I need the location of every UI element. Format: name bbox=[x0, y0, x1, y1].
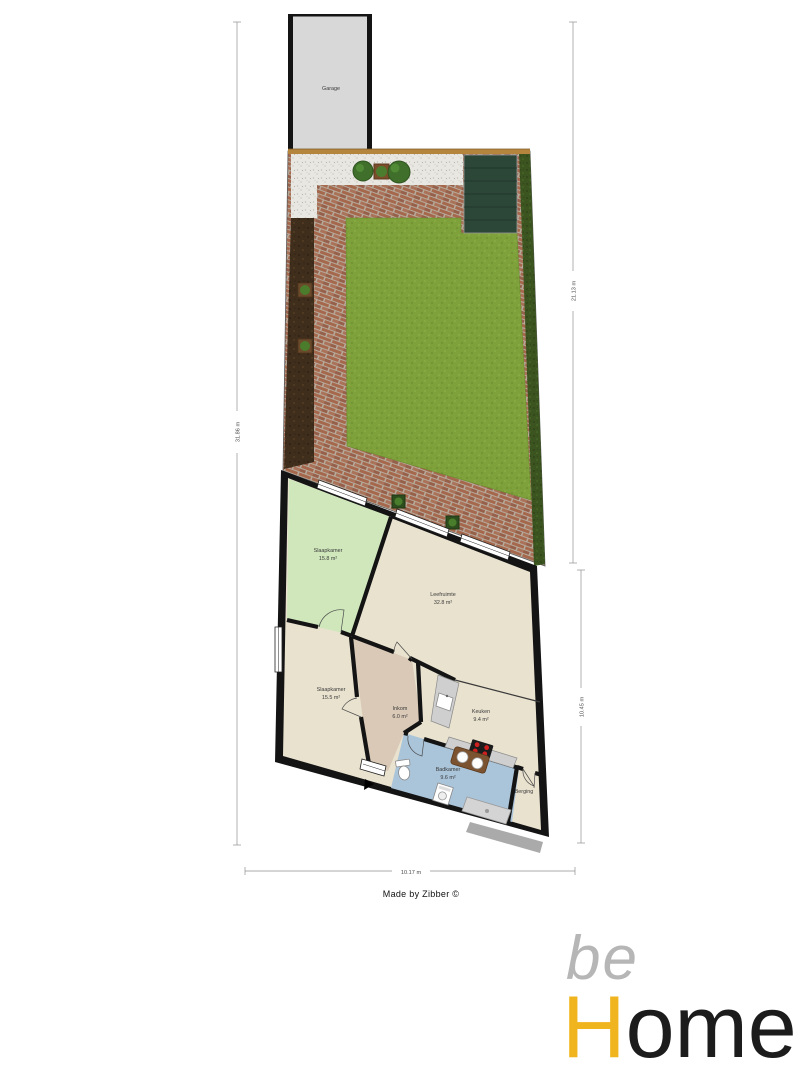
label-slaapkamer2-area: 15.5 m² bbox=[322, 695, 340, 701]
dim-right-upper: 21.13 m bbox=[572, 281, 578, 302]
label-leefruimte-area: 32.8 m² bbox=[434, 600, 452, 606]
garage-wall-right bbox=[367, 14, 372, 151]
credit-text: Made by Zibber © bbox=[383, 889, 460, 899]
shower-drain bbox=[485, 809, 489, 813]
label-inkom-area: 6.0 m² bbox=[392, 714, 407, 720]
label-berging-name: Berging bbox=[515, 789, 534, 795]
gravel-strip-left bbox=[291, 154, 317, 218]
garage: Garage bbox=[288, 14, 372, 151]
label-leefruimte-name: Leefruimte bbox=[430, 592, 455, 598]
garage-wall-left bbox=[288, 14, 293, 151]
label-inkom-name: Inkom bbox=[393, 706, 408, 712]
floorplan-svg: Garage bbox=[0, 0, 810, 1080]
label-keuken-name: Keuken bbox=[472, 709, 490, 715]
label-slaapkamer1-name: Slaapkamer bbox=[314, 548, 343, 554]
dim-right-lower: 10.45 m bbox=[580, 697, 586, 718]
floorplan-canvas: Garage bbox=[0, 0, 810, 1080]
label-badkamer-name: Badkamer bbox=[436, 767, 461, 773]
garage-floor bbox=[291, 16, 370, 149]
logo-home-h: H bbox=[562, 977, 626, 1076]
shed bbox=[464, 155, 517, 233]
garage-label: Garage bbox=[322, 86, 340, 92]
label-keuken-area: 9.4 m² bbox=[473, 717, 488, 723]
label-badkamer-area: 9.6 m² bbox=[440, 775, 455, 781]
label-slaapkamer2-name: Slaapkamer bbox=[317, 687, 346, 693]
dim-left: 31.86 m bbox=[236, 422, 242, 443]
fence-top bbox=[288, 149, 530, 154]
logo: be Home bbox=[562, 924, 797, 1076]
garage-wall-top bbox=[288, 14, 372, 17]
dim-bottom: 10.17 m bbox=[401, 870, 422, 876]
logo-home: Home bbox=[562, 977, 797, 1076]
label-slaapkamer1-area: 15.8 m² bbox=[319, 556, 337, 562]
logo-home-ome: ome bbox=[626, 977, 797, 1076]
